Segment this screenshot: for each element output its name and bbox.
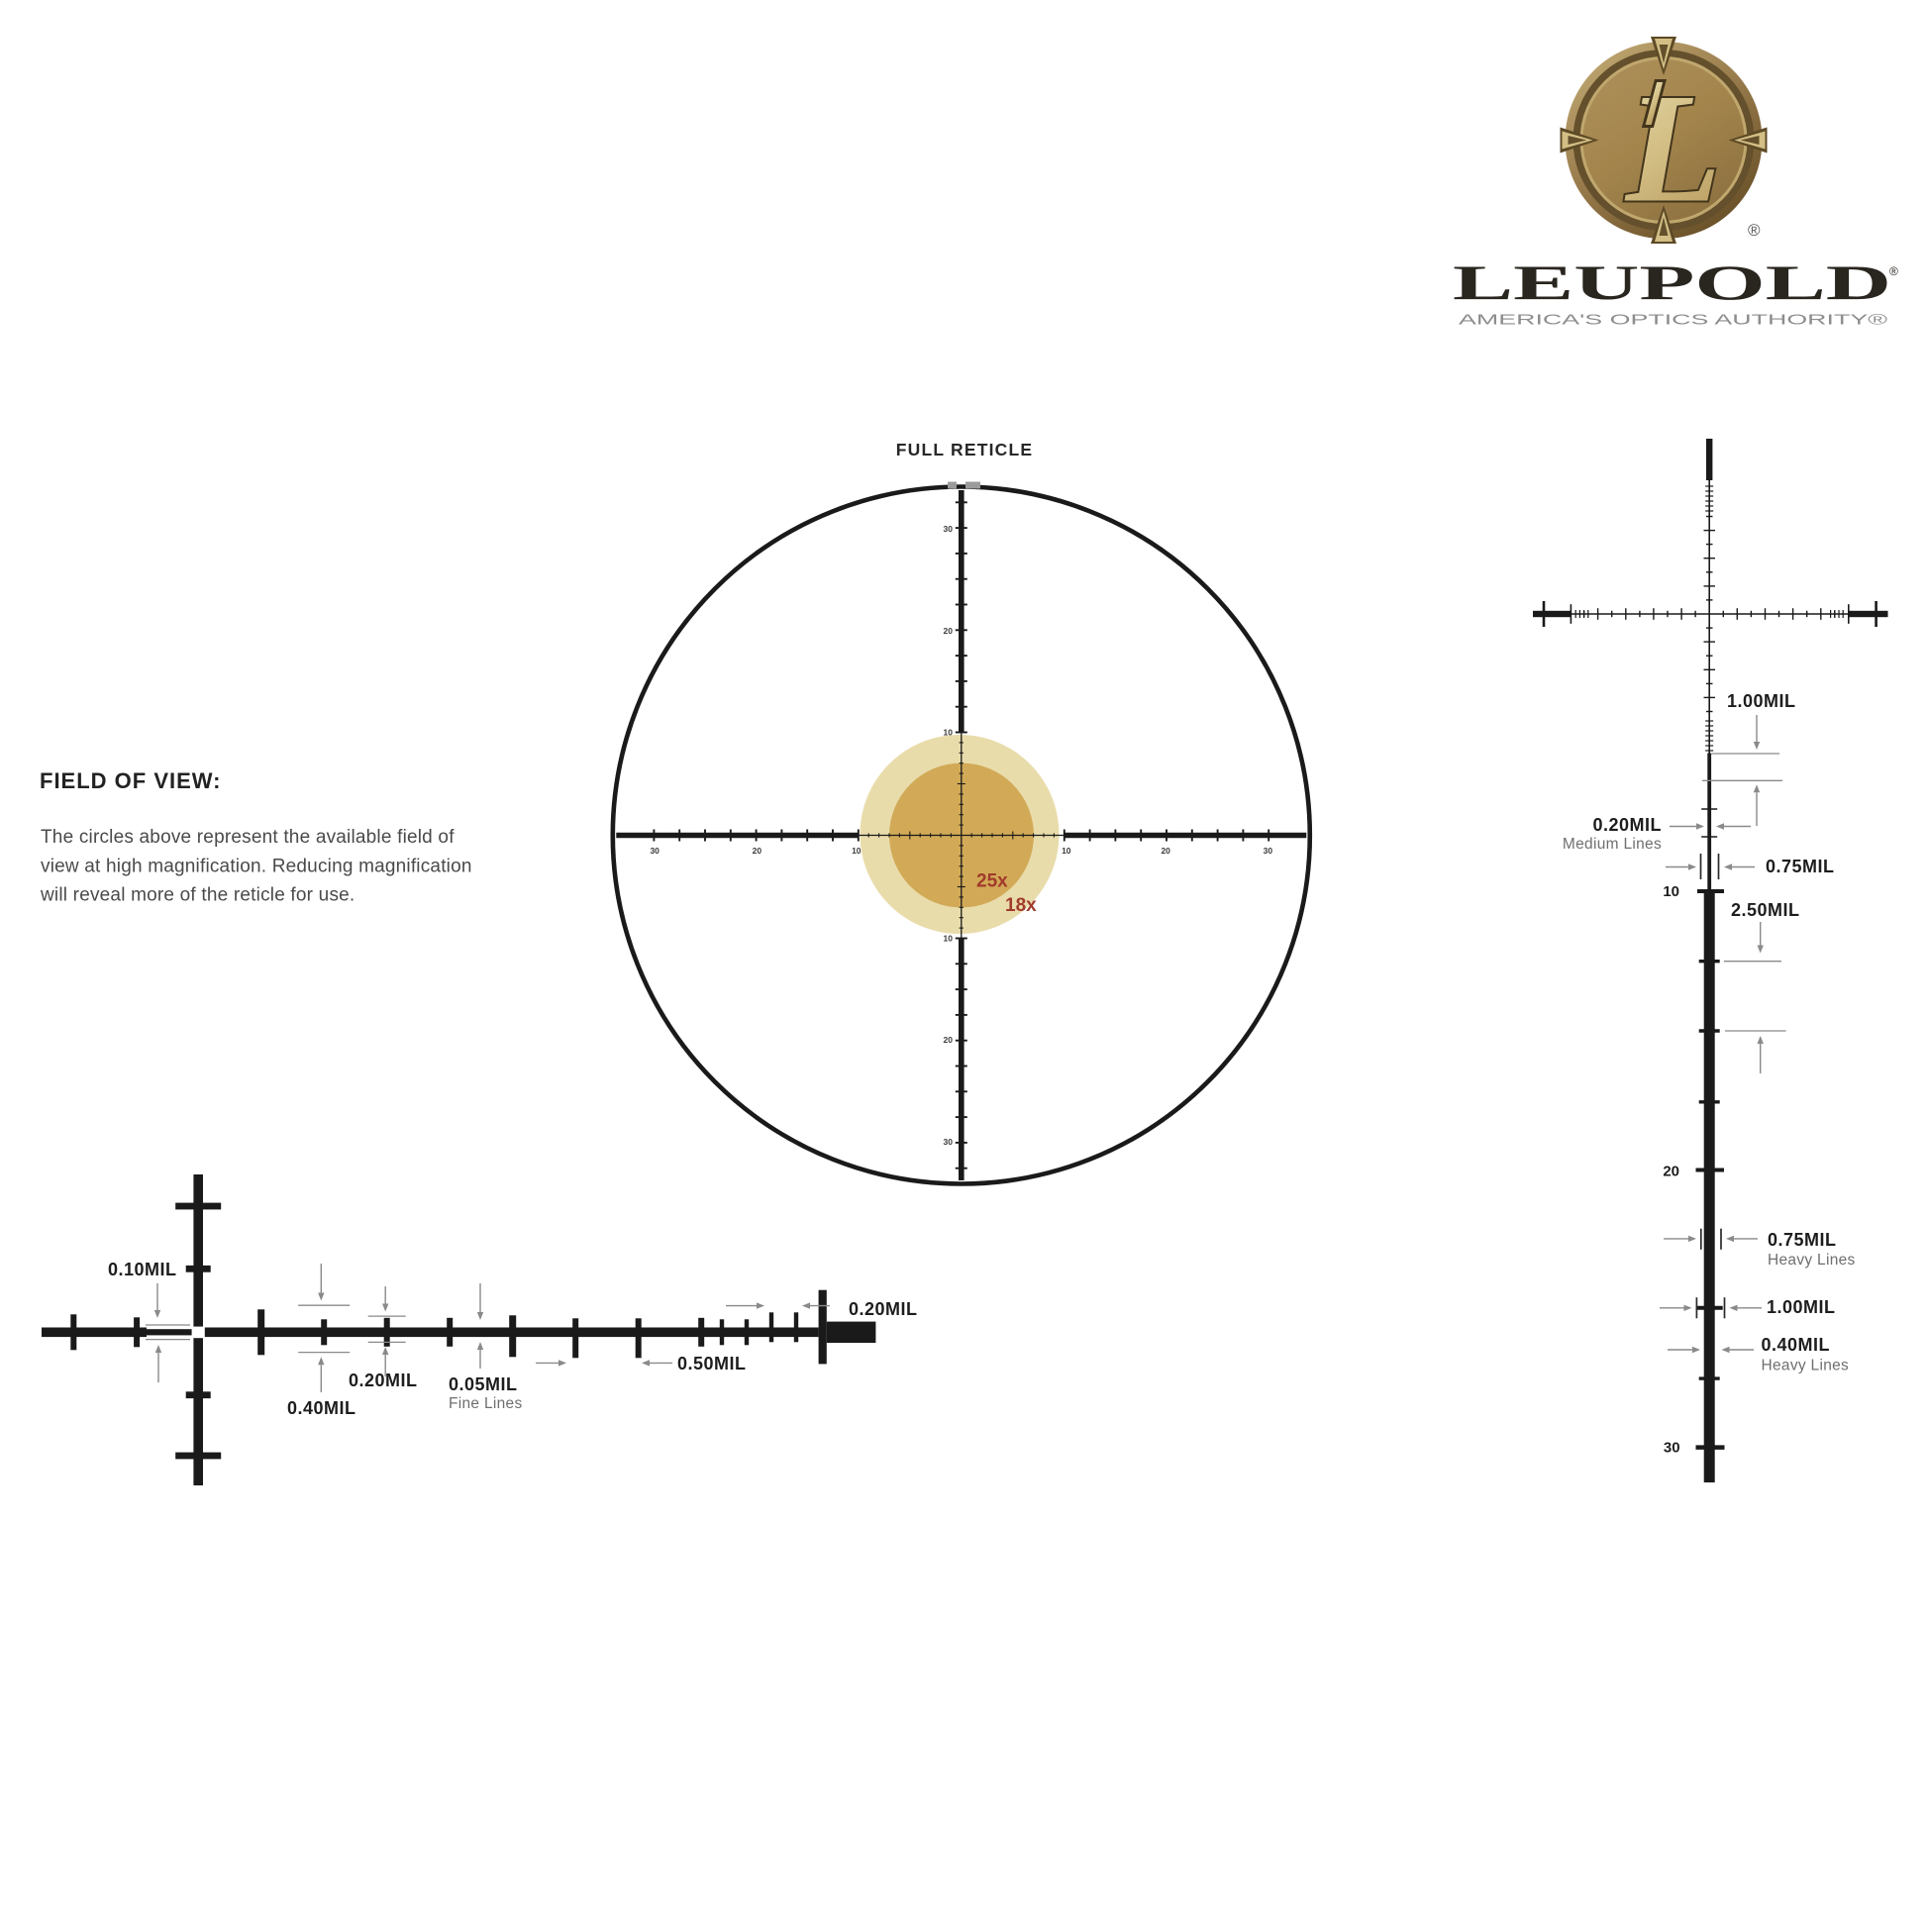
svg-text:20: 20 [753, 846, 762, 856]
svg-text:10: 10 [1062, 846, 1071, 856]
svg-text:10: 10 [852, 846, 862, 856]
svg-text:20: 20 [944, 626, 954, 636]
svg-text:1.00MIL: 1.00MIL [1767, 1297, 1836, 1317]
svg-text:20: 20 [944, 1035, 954, 1045]
svg-text:0.20MIL: 0.20MIL [1592, 815, 1662, 835]
svg-text:L: L [1624, 62, 1722, 236]
svg-text:0.20MIL: 0.20MIL [849, 1299, 918, 1319]
svg-text:FULL RETICLE: FULL RETICLE [896, 440, 1034, 459]
svg-text:FIELD OF VIEW:: FIELD OF VIEW: [40, 768, 221, 793]
svg-text:0.40MIL: 0.40MIL [1762, 1335, 1831, 1355]
svg-text:view at high magnification. Re: view at high magnification. Reducing mag… [41, 857, 472, 877]
svg-text:will reveal more of the reticl: will reveal more of the reticle for use. [40, 885, 355, 906]
svg-text:Heavy Lines: Heavy Lines [1762, 1358, 1850, 1374]
svg-text:®: ® [1748, 221, 1761, 240]
svg-text:®: ® [1889, 264, 1898, 278]
svg-text:0.50MIL: 0.50MIL [677, 1354, 747, 1373]
svg-text:20: 20 [1161, 846, 1170, 856]
svg-text:10: 10 [1663, 883, 1679, 900]
svg-text:25x: 25x [976, 871, 1008, 892]
svg-text:30: 30 [1664, 1440, 1680, 1457]
svg-text:0.40MIL: 0.40MIL [287, 1398, 356, 1418]
svg-text:0.10MIL: 0.10MIL [108, 1260, 177, 1279]
svg-text:2.50MIL: 2.50MIL [1731, 900, 1800, 920]
svg-text:Heavy Lines: Heavy Lines [1768, 1252, 1856, 1269]
svg-text:30: 30 [944, 524, 954, 534]
svg-text:Medium Lines: Medium Lines [1563, 836, 1662, 853]
svg-text:1.00MIL: 1.00MIL [1727, 691, 1796, 711]
svg-text:10: 10 [944, 934, 954, 944]
svg-text:The circles above represent th: The circles above represent the availabl… [41, 827, 455, 848]
svg-text:20: 20 [1663, 1164, 1679, 1180]
svg-text:18x: 18x [1005, 895, 1037, 916]
svg-text:0.20MIL: 0.20MIL [349, 1371, 418, 1390]
svg-text:10: 10 [944, 728, 954, 738]
svg-text:0.75MIL: 0.75MIL [1768, 1230, 1837, 1250]
svg-text:0.05MIL: 0.05MIL [449, 1374, 518, 1394]
svg-text:30: 30 [1264, 846, 1273, 856]
svg-text:0.75MIL: 0.75MIL [1766, 857, 1835, 876]
svg-text:LEUPOLD: LEUPOLD [1453, 254, 1891, 310]
svg-text:30: 30 [650, 846, 659, 856]
svg-text:Fine Lines: Fine Lines [449, 1395, 523, 1412]
svg-text:30: 30 [944, 1137, 954, 1147]
svg-text:AMERICA'S OPTICS AUTHORITY®: AMERICA'S OPTICS AUTHORITY® [1459, 313, 1888, 329]
